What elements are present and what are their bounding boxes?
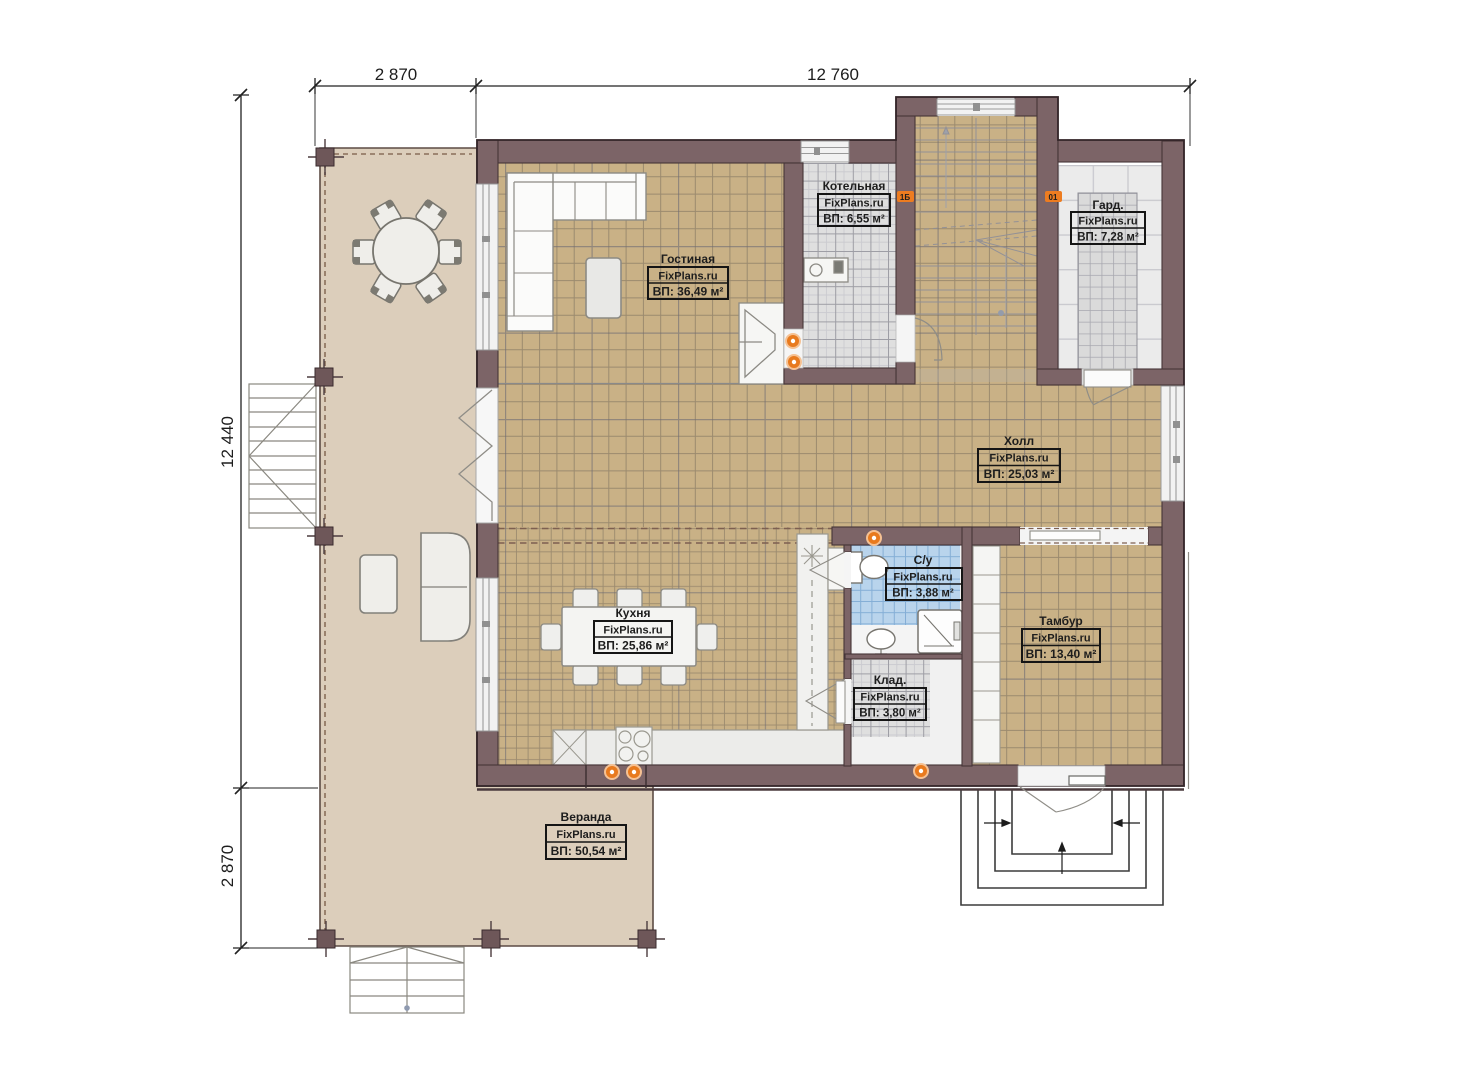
svg-text:FixPlans.ru: FixPlans.ru: [893, 572, 952, 584]
svg-text:1Б: 1Б: [900, 193, 910, 202]
svg-text:ВП: 3,80 м²: ВП: 3,80 м²: [859, 708, 921, 720]
svg-text:ВП: 25,03 м²: ВП: 25,03 м²: [984, 467, 1055, 481]
svg-text:FixPlans.ru: FixPlans.ru: [1078, 216, 1137, 228]
svg-text:Клад.: Клад.: [874, 673, 907, 687]
svg-text:Котельная: Котельная: [823, 179, 886, 193]
svg-text:FixPlans.ru: FixPlans.ru: [824, 198, 883, 210]
svg-text:FixPlans.ru: FixPlans.ru: [603, 625, 662, 637]
svg-text:ВП: 36,49 м²: ВП: 36,49 м²: [653, 285, 724, 299]
svg-text:12 440: 12 440: [218, 416, 237, 468]
svg-text:12 760: 12 760: [807, 65, 859, 84]
svg-text:Тамбур: Тамбур: [1039, 614, 1083, 628]
svg-text:Гард.: Гард.: [1092, 198, 1123, 212]
svg-text:01: 01: [1049, 193, 1058, 202]
svg-text:FixPlans.ru: FixPlans.ru: [989, 453, 1048, 465]
svg-text:FixPlans.ru: FixPlans.ru: [860, 692, 919, 704]
svg-text:Веранда: Веранда: [561, 810, 612, 824]
svg-text:ВП: 7,28 м²: ВП: 7,28 м²: [1077, 232, 1139, 244]
svg-text:FixPlans.ru: FixPlans.ru: [1031, 633, 1090, 645]
svg-text:FixPlans.ru: FixPlans.ru: [658, 271, 717, 283]
svg-text:Гостиная: Гостиная: [661, 252, 715, 266]
svg-text:ВП: 3,88 м²: ВП: 3,88 м²: [892, 588, 954, 600]
svg-text:FixPlans.ru: FixPlans.ru: [556, 829, 615, 841]
svg-text:2 870: 2 870: [218, 845, 237, 888]
svg-text:2 870: 2 870: [375, 65, 418, 84]
svg-text:С/у: С/у: [914, 553, 933, 567]
svg-text:ВП: 25,86 м²: ВП: 25,86 м²: [598, 639, 669, 653]
svg-text:ВП: 6,55 м²: ВП: 6,55 м²: [823, 214, 885, 226]
svg-text:Холл: Холл: [1004, 434, 1034, 448]
svg-text:Кухня: Кухня: [615, 606, 650, 620]
svg-text:ВП: 50,54 м²: ВП: 50,54 м²: [551, 844, 622, 858]
svg-text:ВП: 13,40 м²: ВП: 13,40 м²: [1026, 647, 1097, 661]
